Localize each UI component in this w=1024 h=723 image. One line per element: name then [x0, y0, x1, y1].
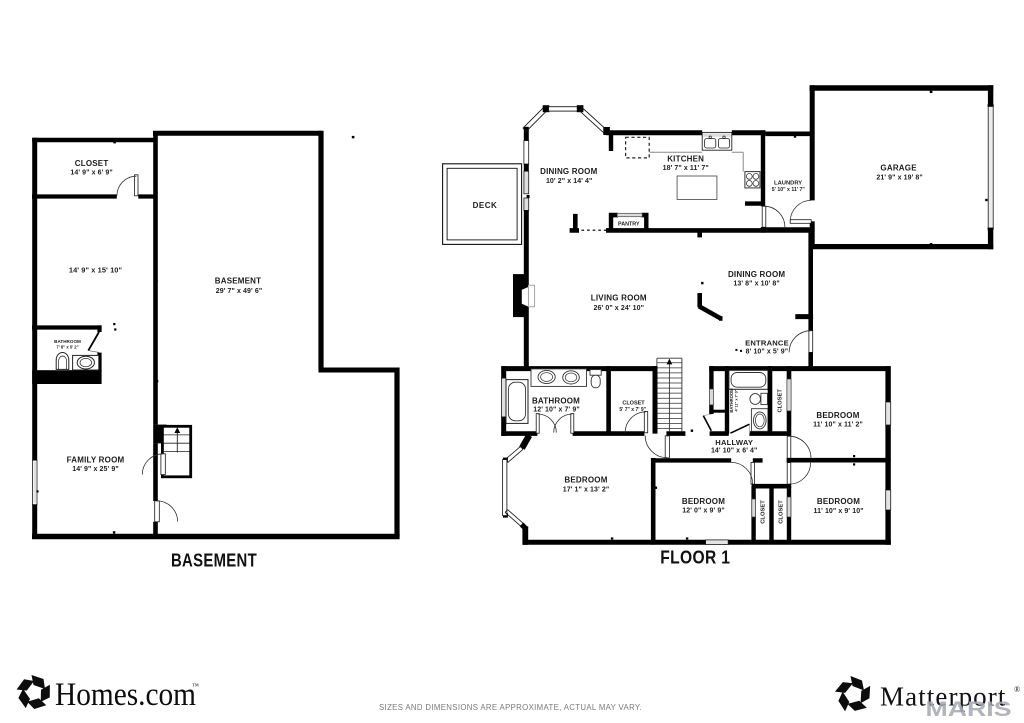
svg-text:PANTRY: PANTRY — [618, 221, 640, 227]
svg-text:CLOSET: CLOSET — [779, 500, 785, 524]
svg-text:FAMILY ROOM: FAMILY ROOM — [67, 456, 125, 465]
svg-text:CLOSET: CLOSET — [778, 389, 784, 413]
svg-text:HALLWAY: HALLWAY — [715, 438, 753, 447]
svg-text:MARIS: MARIS — [926, 697, 1012, 721]
svg-text:18' 7" x 11' 7": 18' 7" x 11' 7" — [663, 165, 709, 172]
svg-text:12' 0" x 9' 9": 12' 0" x 9' 9" — [682, 508, 725, 515]
svg-text:5' 10" x 11' 7": 5' 10" x 11' 7" — [772, 187, 806, 193]
svg-text:BEDROOM: BEDROOM — [564, 476, 607, 485]
svg-text:BASEMENT: BASEMENT — [215, 277, 262, 286]
svg-text:BASEMENT: BASEMENT — [171, 550, 257, 571]
svg-text:26' 0" x 24' 10": 26' 0" x 24' 10" — [594, 305, 645, 312]
svg-text:BEDROOM: BEDROOM — [817, 497, 860, 506]
svg-text:14' 9" x 6' 9": 14' 9" x 6' 9" — [70, 169, 113, 176]
svg-text:13' 8" x 10' 8": 13' 8" x 10' 8" — [733, 281, 780, 288]
svg-text:8' 10" x 5' 9": 8' 10" x 5' 9" — [746, 348, 789, 355]
svg-text:12' 10" x 7' 9": 12' 10" x 7' 9" — [533, 407, 580, 414]
svg-text:GARAGE: GARAGE — [880, 164, 917, 173]
svg-text:7' 8" x 5' 2": 7' 8" x 5' 2" — [56, 345, 78, 350]
svg-text:DINING ROOM: DINING ROOM — [728, 270, 785, 279]
svg-text:BEDROOM: BEDROOM — [816, 411, 859, 420]
svg-text:11' 10" x 9' 10": 11' 10" x 9' 10" — [814, 508, 864, 515]
svg-text:29' 7" x 49' 6": 29' 7" x 49' 6" — [216, 288, 263, 295]
svg-text:17' 1" x 13' 2": 17' 1" x 13' 2" — [563, 487, 610, 494]
svg-text:®: ® — [1014, 685, 1020, 694]
svg-text:5' 7" x 7' 9": 5' 7" x 7' 9" — [619, 407, 646, 413]
svg-text:CLOSET: CLOSET — [75, 159, 109, 168]
svg-text:Homes.com: Homes.com — [55, 677, 196, 713]
svg-text:LIVING ROOM: LIVING ROOM — [591, 294, 647, 303]
svg-text:CLOSET: CLOSET — [622, 401, 645, 407]
svg-text:14' 9" x 15' 10": 14' 9" x 15' 10" — [69, 266, 123, 275]
svg-text:SIZES AND DIMENSIONS ARE APPRO: SIZES AND DIMENSIONS ARE APPROXIMATE, AC… — [379, 703, 642, 712]
svg-text:11' 10" x 11' 2": 11' 10" x 11' 2" — [813, 421, 863, 428]
svg-text:14' 9" x 25' 9": 14' 9" x 25' 9" — [72, 466, 119, 473]
svg-text:BATHROOM: BATHROOM — [54, 339, 81, 344]
svg-text:LAUNDRY: LAUNDRY — [774, 180, 802, 186]
svg-text:CLOSET: CLOSET — [761, 500, 767, 524]
svg-text:BATHROOM: BATHROOM — [532, 397, 580, 406]
svg-text:™: ™ — [192, 682, 199, 690]
svg-text:DINING ROOM: DINING ROOM — [540, 167, 597, 176]
svg-text:14' 10" x 6' 4": 14' 10" x 6' 4" — [711, 448, 758, 455]
svg-text:BATHROOM: BATHROOM — [729, 388, 734, 413]
svg-text:21' 9" x 19' 8": 21' 9" x 19' 8" — [876, 175, 923, 182]
svg-text:KITCHEN: KITCHEN — [667, 155, 704, 164]
svg-text:4' 11" x 7' 9": 4' 11" x 7' 9" — [735, 389, 739, 411]
svg-text:DECK: DECK — [473, 201, 498, 210]
svg-text:FLOOR 1: FLOOR 1 — [660, 547, 730, 568]
svg-text:10' 2" x 14' 4": 10' 2" x 14' 4" — [546, 178, 593, 185]
svg-text:ENTRANCE: ENTRANCE — [745, 339, 789, 348]
svg-text:BEDROOM: BEDROOM — [682, 497, 725, 506]
